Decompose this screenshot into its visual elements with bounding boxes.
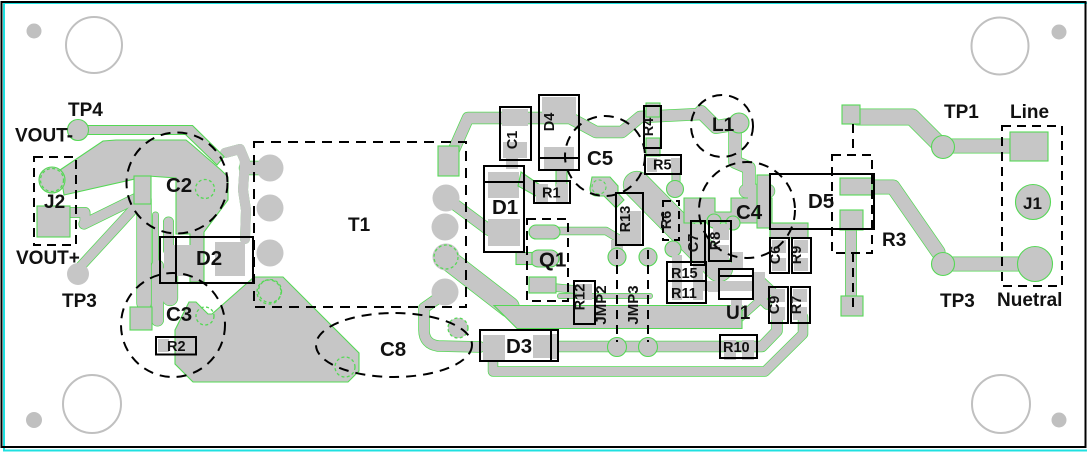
svg-text:R9: R9 — [789, 246, 805, 265]
svg-text:L1: L1 — [712, 115, 735, 136]
svg-text:C4: C4 — [736, 201, 763, 224]
svg-text:R1: R1 — [542, 186, 561, 202]
svg-text:TP3: TP3 — [62, 291, 97, 312]
svg-text:R6: R6 — [659, 211, 675, 230]
svg-text:C1: C1 — [505, 131, 521, 150]
svg-text:C2: C2 — [166, 174, 192, 197]
svg-text:Nuetral: Nuetral — [997, 290, 1062, 311]
svg-text:D1: D1 — [492, 196, 518, 219]
svg-text:R3: R3 — [882, 230, 906, 251]
svg-text:VOUT+: VOUT+ — [16, 248, 80, 269]
svg-text:TP1: TP1 — [944, 102, 979, 123]
svg-text:JMP3: JMP3 — [625, 285, 642, 324]
svg-text:U1: U1 — [726, 303, 751, 324]
svg-text:TP3: TP3 — [940, 291, 975, 312]
svg-text:D2: D2 — [196, 247, 222, 270]
svg-text:R7: R7 — [789, 296, 805, 315]
svg-text:C6: C6 — [768, 246, 784, 265]
svg-text:J1: J1 — [1023, 194, 1042, 213]
svg-text:R4: R4 — [641, 118, 657, 137]
svg-text:R5: R5 — [653, 158, 672, 174]
svg-text:R10: R10 — [723, 340, 750, 356]
svg-text:C9: C9 — [767, 296, 783, 315]
svg-text:R11: R11 — [671, 286, 697, 302]
svg-text:C8: C8 — [380, 338, 406, 361]
svg-text:TP4: TP4 — [68, 100, 103, 121]
svg-text:R12: R12 — [573, 284, 589, 311]
svg-text:T1: T1 — [348, 215, 371, 236]
svg-text:D4: D4 — [542, 113, 558, 132]
svg-text:Q1: Q1 — [539, 249, 566, 272]
svg-text:D5: D5 — [808, 190, 834, 213]
svg-text:R13: R13 — [618, 206, 634, 233]
svg-text:C7: C7 — [686, 234, 702, 253]
svg-text:J2: J2 — [44, 192, 65, 213]
svg-text:C5: C5 — [587, 147, 613, 170]
svg-text:C3: C3 — [166, 303, 192, 326]
svg-text:Line: Line — [1010, 102, 1049, 123]
svg-text:VOUT-: VOUT- — [15, 126, 73, 147]
svg-text:R8: R8 — [708, 232, 724, 251]
svg-text:D3: D3 — [506, 335, 532, 358]
svg-text:R2: R2 — [167, 339, 186, 355]
svg-text:JMP2: JMP2 — [593, 285, 610, 324]
svg-text:R15: R15 — [671, 266, 698, 282]
